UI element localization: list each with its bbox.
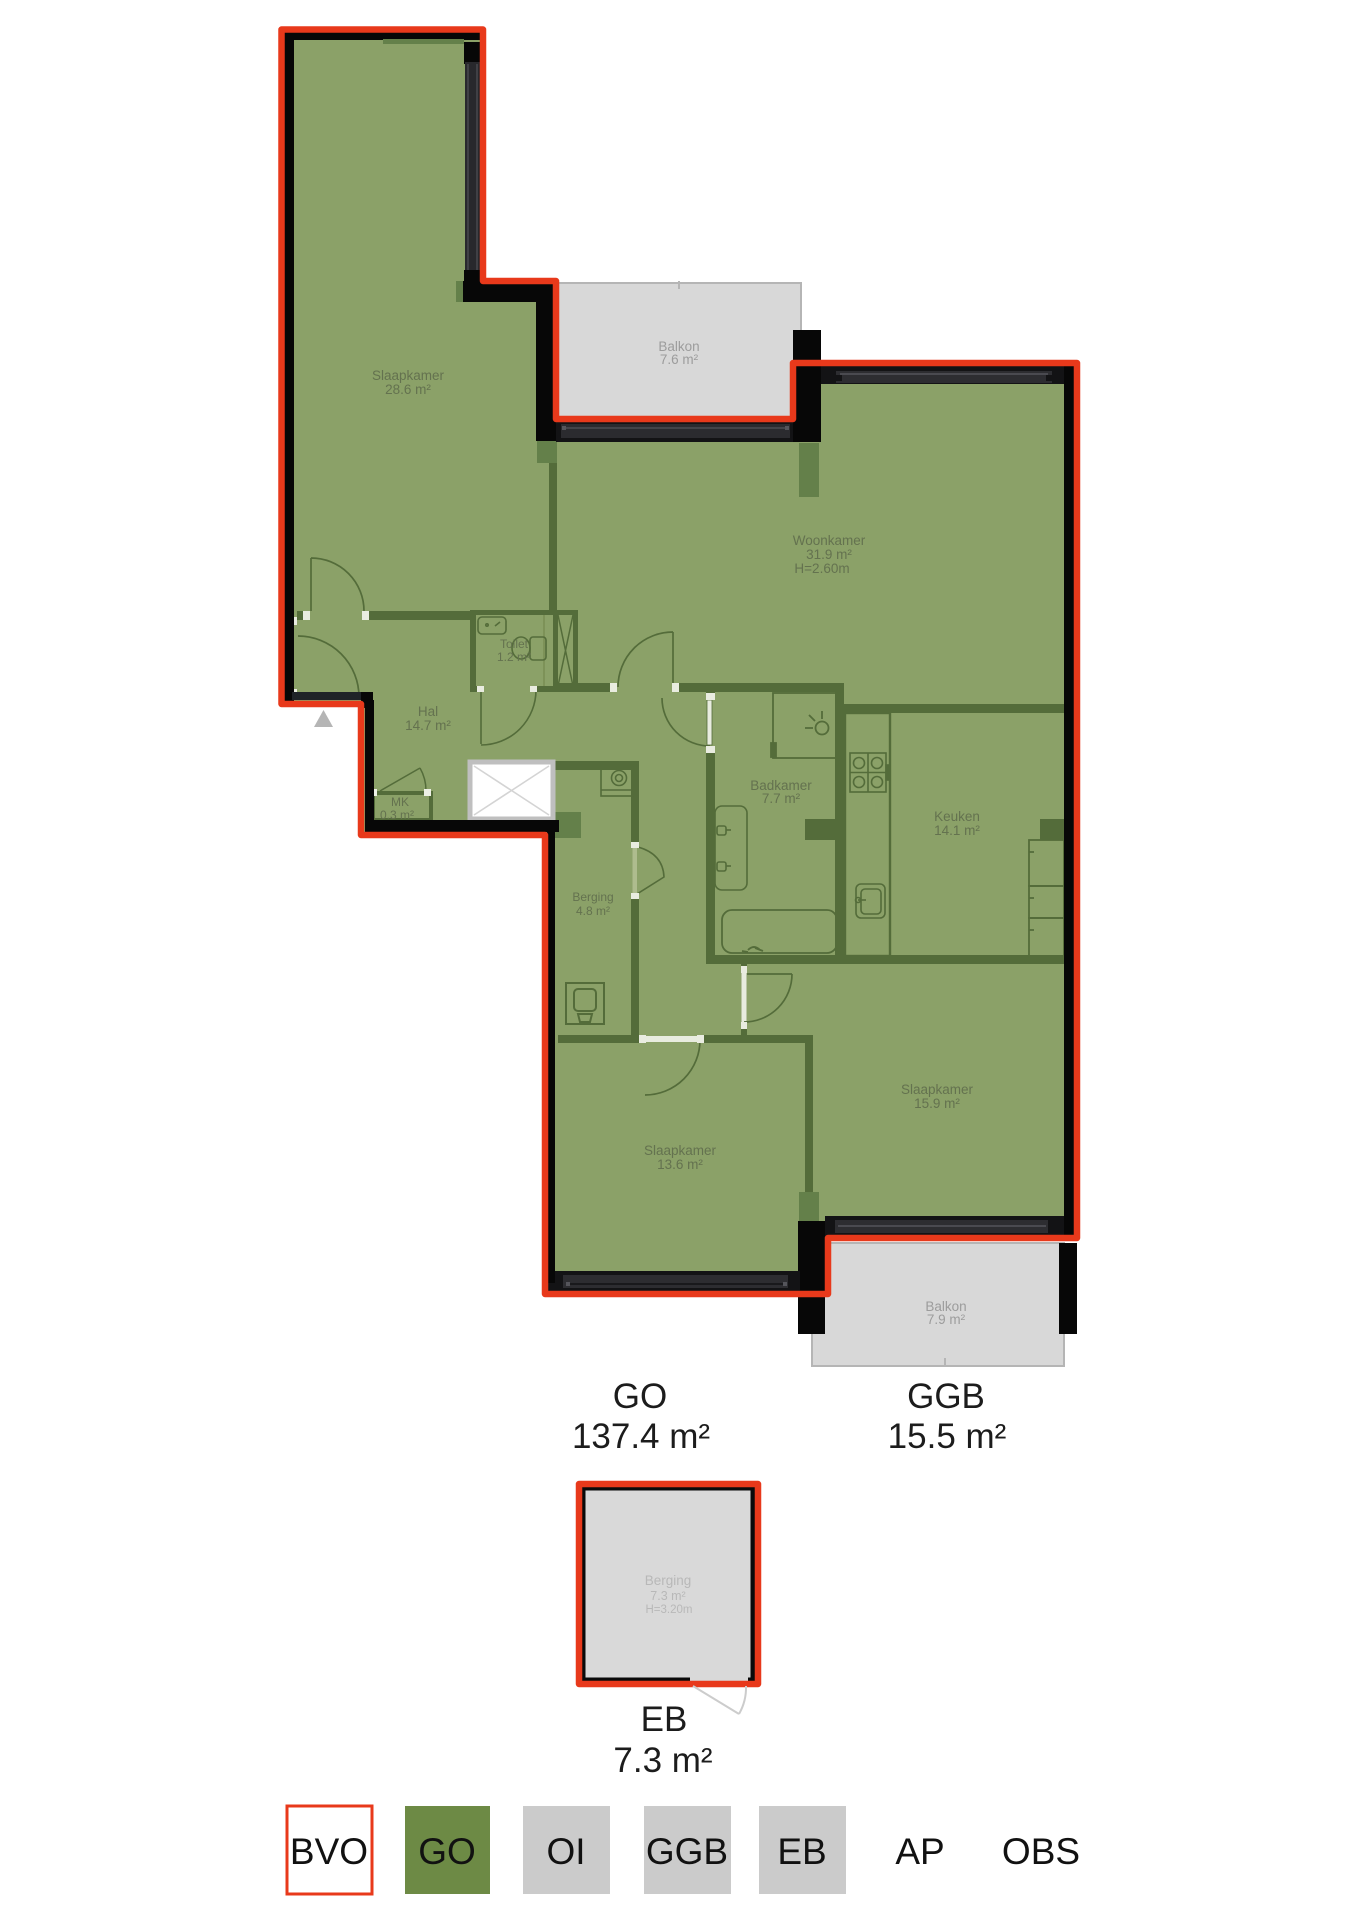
svg-text:EB: EB (641, 1700, 688, 1739)
svg-text:Berging: Berging (572, 890, 613, 904)
svg-text:15.9 m²: 15.9 m² (914, 1096, 960, 1111)
svg-text:GO: GO (613, 1377, 667, 1416)
svg-text:H=3.20m: H=3.20m (646, 1604, 693, 1616)
svg-text:13.6 m²: 13.6 m² (657, 1157, 703, 1172)
svg-text:GO: GO (418, 1831, 476, 1872)
svg-text:EB: EB (777, 1831, 826, 1872)
svg-text:BVO: BVO (290, 1831, 368, 1872)
svg-text:7.6 m²: 7.6 m² (660, 352, 699, 367)
svg-text:137.4 m²: 137.4 m² (572, 1417, 710, 1456)
svg-text:0.3 m²: 0.3 m² (380, 808, 414, 822)
svg-text:31.9 m²: 31.9 m² (806, 547, 852, 562)
svg-text:Toilet: Toilet (500, 637, 529, 651)
svg-text:7.3 m²: 7.3 m² (650, 1589, 685, 1603)
svg-text:14.1 m²: 14.1 m² (934, 823, 980, 838)
svg-text:H=2.60m: H=2.60m (794, 561, 849, 576)
svg-text:GGB: GGB (646, 1831, 728, 1872)
svg-text:4.8 m²: 4.8 m² (576, 904, 610, 918)
svg-text:15.5 m²: 15.5 m² (888, 1417, 1007, 1456)
svg-text:OI: OI (546, 1831, 585, 1872)
svg-text:Keuken: Keuken (934, 809, 980, 824)
svg-text:OBS: OBS (1002, 1831, 1080, 1872)
svg-text:14.7 m²: 14.7 m² (405, 718, 451, 733)
svg-text:28.6 m²: 28.6 m² (385, 382, 431, 397)
svg-text:AP: AP (895, 1831, 944, 1872)
svg-text:Slaapkamer: Slaapkamer (644, 1143, 717, 1158)
svg-text:Berging: Berging (645, 1573, 692, 1588)
svg-text:Slaapkamer: Slaapkamer (901, 1082, 974, 1097)
svg-text:7.9 m²: 7.9 m² (927, 1312, 966, 1327)
svg-text:Slaapkamer: Slaapkamer (372, 368, 445, 383)
svg-text:Hal: Hal (418, 704, 438, 719)
svg-text:MK: MK (391, 795, 409, 809)
svg-text:GGB: GGB (907, 1377, 985, 1416)
svg-text:Woonkamer: Woonkamer (793, 533, 866, 548)
svg-text:7.3 m²: 7.3 m² (613, 1741, 712, 1780)
svg-text:7.7 m²: 7.7 m² (762, 791, 801, 806)
svg-text:1.2 m²: 1.2 m² (497, 650, 531, 664)
